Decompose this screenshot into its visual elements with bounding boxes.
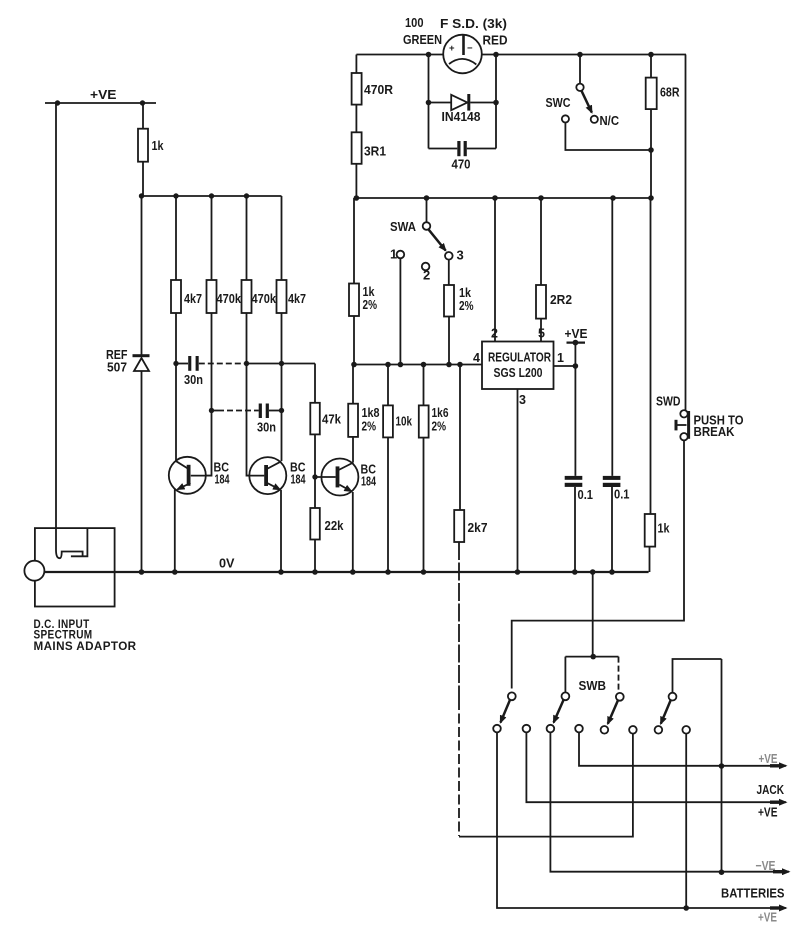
svg-text:0.1: 0.1 [614, 487, 630, 502]
svg-text:2%: 2% [362, 419, 377, 434]
svg-text:SGS L200: SGS L200 [494, 366, 543, 380]
svg-text:IN4148: IN4148 [442, 109, 481, 124]
svg-text:RED: RED [483, 33, 508, 48]
svg-text:SWD: SWD [656, 394, 681, 409]
svg-text:4k7: 4k7 [288, 291, 306, 306]
svg-text:470R: 470R [364, 82, 394, 97]
svg-text:470: 470 [452, 157, 471, 172]
svg-text:3: 3 [519, 393, 526, 407]
svg-text:5: 5 [538, 327, 545, 341]
svg-text:SWA: SWA [390, 219, 417, 234]
svg-text:2: 2 [423, 268, 430, 283]
svg-text:1k: 1k [152, 138, 165, 153]
svg-text:−: − [467, 43, 473, 54]
svg-text:N/C: N/C [600, 113, 620, 128]
svg-text:+VE: +VE [758, 805, 778, 820]
svg-text:184: 184 [215, 472, 231, 487]
svg-text:184: 184 [291, 472, 307, 487]
svg-text:+VE: +VE [565, 326, 588, 341]
svg-text:1k: 1k [658, 521, 671, 536]
svg-text:+VE: +VE [90, 87, 117, 102]
svg-text:SWB: SWB [579, 678, 607, 693]
svg-text:3R1: 3R1 [364, 144, 386, 159]
svg-text:68R: 68R [660, 85, 680, 100]
svg-text:JACK: JACK [757, 782, 785, 797]
svg-text:+VE: +VE [759, 751, 778, 766]
svg-text:+: + [449, 43, 455, 54]
svg-text:22k: 22k [325, 518, 345, 533]
svg-text:1: 1 [390, 247, 397, 262]
svg-text:184: 184 [361, 474, 377, 489]
svg-text:BREAK: BREAK [694, 424, 736, 439]
svg-text:2%: 2% [432, 419, 447, 434]
svg-text:470k: 470k [217, 291, 242, 306]
svg-text:4k7: 4k7 [184, 291, 202, 306]
svg-text:2%: 2% [459, 298, 474, 313]
svg-text:SWC: SWC [546, 95, 571, 110]
svg-text:2: 2 [491, 327, 498, 341]
svg-text:10k: 10k [396, 414, 413, 429]
svg-text:507: 507 [107, 360, 127, 375]
svg-text:100: 100 [405, 15, 424, 30]
svg-text:4: 4 [473, 351, 480, 365]
svg-text:3: 3 [457, 248, 464, 263]
svg-text:1: 1 [557, 351, 564, 365]
svg-text:GREEN: GREEN [403, 32, 442, 47]
svg-text:47k: 47k [322, 412, 342, 427]
svg-text:0.1: 0.1 [578, 487, 594, 502]
svg-text:MAINS ADAPTOR: MAINS ADAPTOR [34, 639, 137, 653]
svg-text:0V: 0V [219, 556, 235, 571]
svg-text:2R2: 2R2 [550, 292, 572, 307]
svg-text:REGULATOR: REGULATOR [488, 351, 551, 365]
svg-text:−VE: −VE [756, 858, 776, 873]
svg-text:30n: 30n [257, 420, 276, 435]
svg-text:30n: 30n [184, 372, 203, 387]
svg-text:2%: 2% [363, 297, 378, 312]
svg-text:+VE: +VE [758, 910, 777, 925]
svg-text:2k7: 2k7 [468, 520, 488, 535]
svg-text:F S.D. (3k): F S.D. (3k) [440, 16, 507, 31]
svg-text:470k: 470k [252, 291, 277, 306]
svg-text:BATTERIES: BATTERIES [721, 886, 785, 901]
